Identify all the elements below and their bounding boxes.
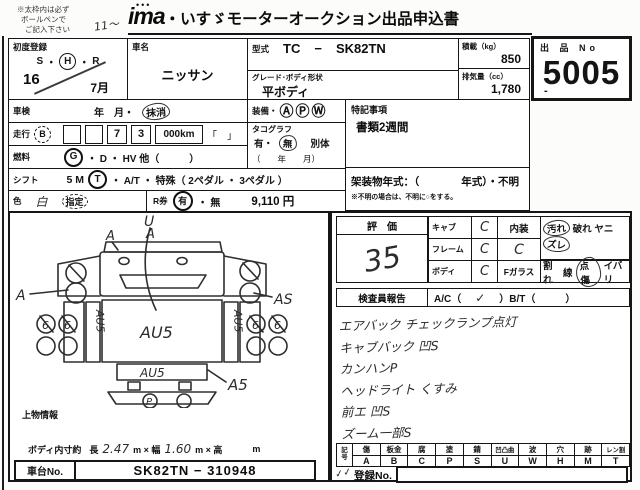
legend-code: W [518,456,546,466]
legend-col: 塗P [435,444,463,466]
fuel-cell: 燃料 G ・ D ・ HV 他（ ） [8,145,248,169]
legend-kanji: 錆 [463,444,491,456]
payload-value: 850 [459,52,521,66]
upper-structure-label: 上物情報 [22,408,58,421]
special-notes-box: 特記事項 書類2週間 [345,99,530,168]
displacement-value: 1,780 [459,82,521,96]
legend-kanji: 板金 [380,444,408,456]
tacho-ym: （ 年 月） [252,153,345,165]
frame-label: フレーム [432,244,464,255]
rticket-yes-circled: 有 [173,191,193,211]
interior-label: 内装 [509,221,528,235]
special-notes-label: 特記事項 [351,103,529,116]
legend-code: M [574,456,602,466]
legend-corner: 記 号 [337,444,352,466]
interior-damage-tar: ヤニ [594,224,613,235]
body-dims-label: ボディ内寸約 [28,443,81,456]
color-label: 色 [13,195,22,207]
equip-cell: 装備・ Ⓐ Ⓟ Ⓦ [247,99,346,123]
displacement-label: 排気量（cc） [462,71,529,82]
legend-kanji: 腐 [407,444,435,456]
body-label: ボディ [432,266,455,277]
diagram-a-left-annotation: A [15,288,26,304]
title-bar: ••• ima ・いすゞモーターオークション出品申込書 [128,3,532,35]
fglass-damage-cell: 割れ 線 点傷 イバリ [540,260,630,283]
interior-damage-zure-circled: ズレ [542,235,570,253]
diagram-as-right-annotation: AS [273,292,293,308]
mileage-brackets: 「 」 [207,127,237,142]
body-label-cell: ボディ [428,260,472,283]
mileage-label: 走行 [13,128,30,140]
fglass-label: Fガラス [504,266,535,278]
interior-damage-dirt-circled: 汚れ [542,219,570,237]
legend-col: 錆S [463,444,491,466]
legend-kanji: 塗 [435,444,463,456]
diagram-au5-left-rail: AU5 [93,309,107,333]
fglass-damage-crack: 割れ [543,258,560,286]
legend-col: レン割T [601,444,629,466]
first-reg-year: 16 [23,71,40,88]
page-title: ・いすゞモーターオークション出品申込書 [165,7,460,29]
grade-value: 平ボディ [262,83,458,100]
diagram-a5-annotation: A5 [227,376,248,394]
ac-label: A/C（ [434,290,461,305]
kasou-label: 架装物年式：（ 年式）・不明 [351,174,529,189]
car-name-value: ニッサン [128,65,247,84]
fuel-label: 燃料 [13,151,30,163]
dims-height-label: m × 高 [195,443,222,456]
diagram-au5-tail: AU5 [139,366,165,380]
mileage-digit-1: 7 [107,125,127,144]
model-dash: − [314,41,322,56]
model-cell: 型式 TC − SK82TN [247,38,459,71]
kasou-box: 架装物年式：（ 年式）・不明 ※不明の場合は、不明に○をする。 [345,167,530,211]
frame-grade-hand: C [480,242,489,257]
inspector-label-cell: 検査員報告 [336,288,428,307]
legend-kanji: 凹凸曲 [491,444,519,456]
legend-col: 穴H [546,444,574,466]
shift-cell: シフト 5 M T ・ A/T ・ 特殊（ 2ペダル ・ 3ペダル ） [8,168,346,191]
tacho-label: タコグラフ [252,124,345,135]
payload-label: 積載（kg） [462,41,529,52]
legend-col: 腐C [407,444,435,466]
reg-label: 登録No. [354,468,392,483]
legend-code: A [352,456,380,466]
lot-box: 出 品 No 5005 - [531,36,632,101]
ac-check-mark: ✓ [475,291,485,305]
tacho-yes: 有・ [254,136,273,150]
kasou-note: ※不明の場合は、不明に○をする。 [351,191,529,201]
body-grade-hand: C [480,264,489,279]
fuel-g-circled: G [64,148,83,167]
fglass-damage-ibari: イバリ [604,258,629,286]
color-hand-value: 白 [36,193,48,210]
shaken-cell: 車検 年 月・ 抹消 [8,99,248,123]
mileage-cell: 走行 B 7 3 000km 「 」 [8,122,248,146]
tacho-extra: 別体 [311,136,330,150]
cab-label-cell: キャブ [428,216,472,239]
bt-label: ）B/T（ [499,290,535,305]
chassis-box: 車台No. SK82TN − 310948 [14,460,316,481]
shift-t-circled: T [88,170,107,189]
legend-code: U [491,456,519,466]
fglass-label-cell: Fガラス [497,260,541,283]
mileage-digit-2: 3 [131,125,151,144]
first-reg-label: 初度登録 [13,41,127,53]
shift-rest: ・ A/T ・ 特殊（ 2ペダル ・ 3ペダル ） [111,172,288,187]
rticket-rest: ・ 無 [198,194,221,209]
first-reg-cell: 初度登録 S ・ H ・ R 16 7月 [8,38,128,100]
model-v2: SK82TN [336,41,386,56]
dims-width-label: m × 幅 [133,443,160,456]
legend-col: 板金B [380,444,408,466]
first-reg-month: 7月 [90,79,109,96]
equip-pw-icon: Ⓦ [312,101,326,121]
mileage-box-2 [85,125,103,144]
equip-ac-icon: Ⓐ [280,101,294,121]
legend-code: T [601,456,629,466]
legend-col: 凹凸曲U [491,444,519,466]
equip-label: 装備・ [252,105,278,117]
special-notes-value: 書類2週間 [356,119,529,135]
payload-cell: 積載（kg） 850 [458,38,530,69]
diagram-p-mark: P [146,397,153,408]
car-name-label: 車名 [132,41,247,53]
chassis-value: SK82TN − 310948 [76,462,314,479]
shift-label: シフト [13,174,39,186]
inspector-label: 検査員報告 [358,291,406,305]
legend-corner-bottom: 号 [341,455,348,462]
shift-pre: 5 M [67,174,85,186]
lot-number: 5005 [534,56,629,89]
legend-kanji: 波 [518,444,546,456]
interior-label-cell: 内装 [497,216,541,239]
interior-damage-cell: 汚れ 破れ ヤニ ズレ [540,216,630,260]
grade-label: グレード･ボディ形状 [252,72,458,83]
color-cell: 色 白 指定 [8,190,147,212]
era-h-circled: H [59,53,76,70]
cab-label: キャブ [432,222,456,233]
dims-unit: m [252,444,260,454]
reg-number-box [396,466,628,483]
legend-kanji: 跡 [574,444,602,456]
car-name-cell: 車名 ニッサン [127,38,248,100]
eval-score-cell: 35 [336,234,428,283]
legend-code: P [435,456,463,466]
logo-dots-icon: ••• [136,0,151,10]
mileage-unit: 000km [155,125,203,144]
fuel-rest: ・ D ・ HV 他（ ） [87,150,199,165]
shaken-label: 車検 [13,105,30,117]
mileage-box-1 [63,125,81,144]
legend-kanji: レン割 [601,444,629,456]
fill-note-line3: ご記入下さい [17,25,70,35]
grade-cell: グレード･ボディ形状 平ボディ [247,70,459,100]
legend-code: S [463,456,491,466]
interior-damage-tear: 破れ [573,224,592,235]
dims-length-value: 2.47 [102,442,129,456]
legend-code: H [546,456,574,466]
truck-damage-diagram: U A A A AS AU5 AU5 AU5 6 6 6 6 [12,212,318,408]
damage-code-legend: 記 号 傷A 板金B 腐C 塗P 錆S 凹凸曲U 波W 穴H 跡M レン割T [336,443,630,467]
body-dims-line: ボディ内寸約 長 2.47 m × 幅 1.60 m × 高 m [28,442,260,456]
equip-ps-icon: Ⓟ [296,101,310,121]
shaken-pre: 年 月・ [94,104,134,119]
era-dot: ・ [79,54,89,69]
cab-grade-hand: C [480,220,489,235]
body-grade-cell: C [471,260,498,283]
fill-note-line1: ※太枠内は必ず [17,5,70,15]
cab-grade-cell: C [471,216,498,239]
lot-label: 出 品 No [540,41,629,54]
frame-label-cell: フレーム [428,238,472,261]
legend-col: 波W [518,444,546,466]
shaken-masshou-circled: 抹消 [141,102,170,121]
inspector-notes: エアバック チェックランプ点灯 キャブバック 凹S カンハンP ヘッドライト く… [338,308,621,444]
frame-grade-cell: C [471,238,498,261]
bt-close: ） [535,290,575,305]
eval-header: 評 価 [367,218,397,233]
auction-sheet: ※太枠内は必ず ボールペンで ご記入下さい 11〜 ••• ima ・いすゞモー… [0,0,640,490]
legend-kanji: 穴 [546,444,574,456]
legend-code: C [407,456,435,466]
fglass-damage-chip-circled: 点傷 [575,256,602,288]
inspector-ac-bt-cell: A/C（ ✓ ）B/T（ ） [427,288,630,307]
dims-width-value: 1.60 [164,442,191,456]
era-s: S [37,56,44,67]
model-label: 型式 [252,43,269,55]
diagram-au5-center: AU5 [139,323,173,342]
era-dot: ・ [46,54,56,69]
mileage-b-badge: B [34,126,51,143]
tacho-no-circled: 無 [278,134,297,152]
legend-col: 傷A [352,444,380,466]
rticket-cell: R券 有 ・ 無 9,110 円 [146,190,346,212]
displacement-cell: 排気量（cc） 1,780 [458,68,530,100]
legend-col: 跡M [574,444,602,466]
diagram-au5-right-rail: AU5 [231,309,245,333]
eval-score-hand: 35 [361,239,403,279]
diagram-a-annotation: A [145,227,155,242]
fill-note: ※太枠内は必ず ボールペンで ご記入下さい [17,5,70,34]
legend-code: B [380,456,408,466]
hand-mark: 11〜 [93,15,120,34]
fglass-damage-line: 線 [563,265,573,279]
scan-edge-left [2,36,4,490]
color-shitei-badge: 指定 [62,194,88,209]
dims-length-label: 長 [89,443,98,456]
rticket-label: R券 [153,195,168,207]
legend-kanji: 傷 [352,444,380,456]
interior-grade-hand: C [514,242,524,258]
fill-note-line2: ボールペンで [17,15,70,25]
tacho-cell: タコグラフ 有・ 無 別体 （ 年 月） [247,122,346,169]
model-v1: TC [283,41,300,56]
eval-header-cell: 評 価 [336,216,428,235]
chassis-label: 車台No. [16,462,76,479]
rticket-price: 9,110 円 [251,193,294,209]
interior-grade-cell: C [497,238,541,261]
